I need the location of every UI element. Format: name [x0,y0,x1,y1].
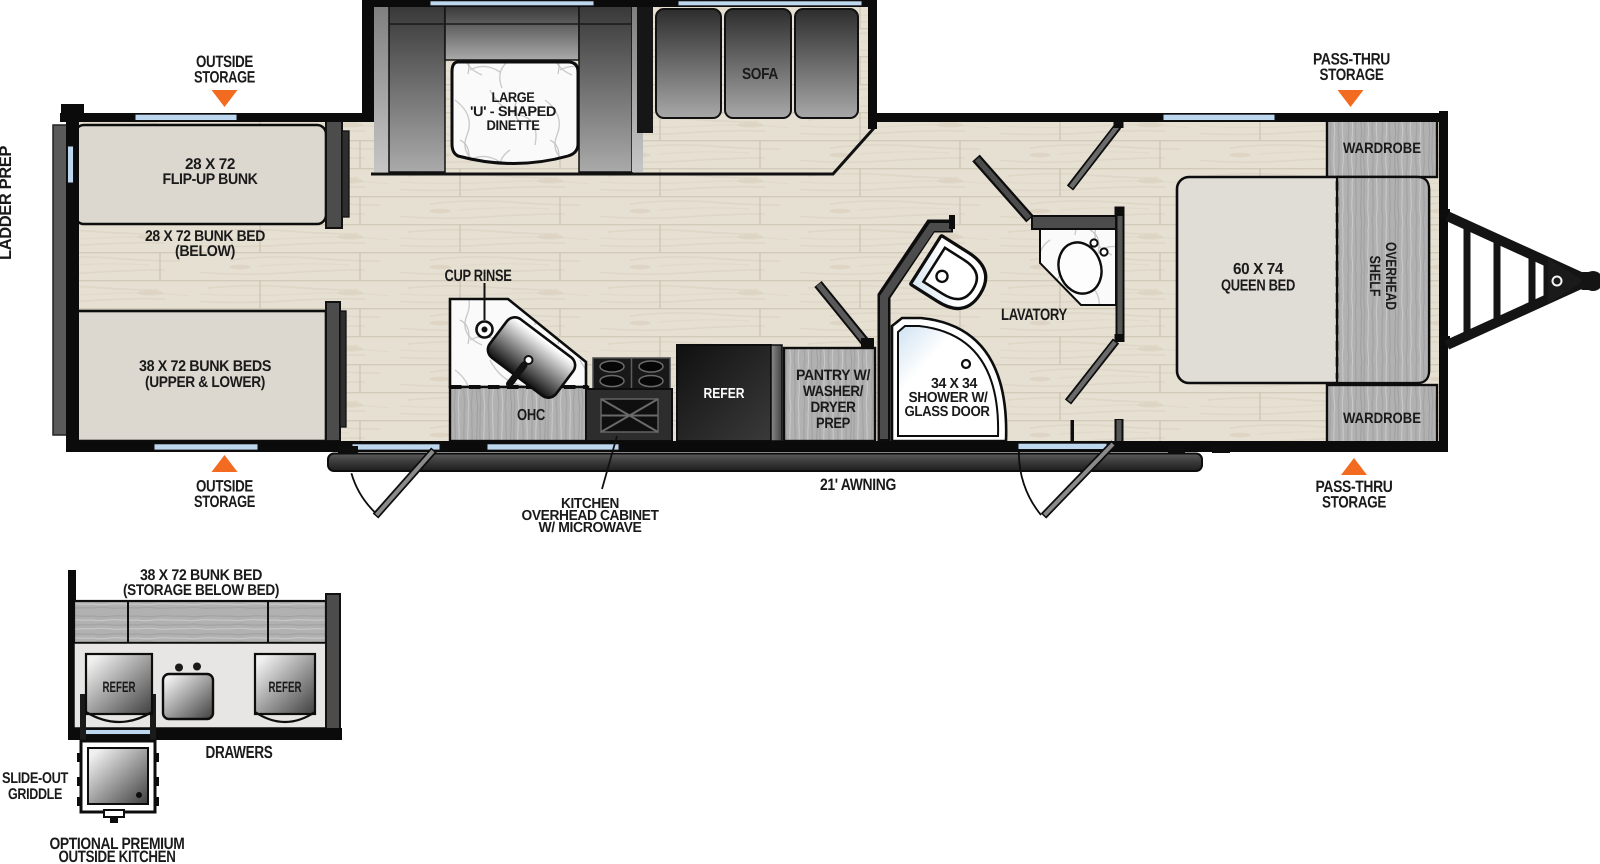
svg-text:LAVATORY: LAVATORY [1001,306,1067,324]
svg-text:60 X 74: 60 X 74 [1233,261,1283,278]
svg-text:FLIP-UP BUNK: FLIP-UP BUNK [163,171,259,188]
svg-text:STORAGE: STORAGE [1322,494,1386,512]
svg-text:STORAGE: STORAGE [1320,66,1384,84]
svg-text:DRAWERS: DRAWERS [206,742,273,762]
svg-text:GRIDDLE: GRIDDLE [8,786,62,803]
svg-text:OVERHEAD: OVERHEAD [1382,242,1399,310]
svg-text:SHELF: SHELF [1366,256,1383,297]
svg-text:WARDROBE: WARDROBE [1343,410,1421,427]
svg-text:OUTSIDE KITCHEN: OUTSIDE KITCHEN [59,848,176,864]
svg-text:PANTRY W/: PANTRY W/ [796,367,871,384]
svg-text:(BELOW): (BELOW) [175,243,235,260]
svg-text:LADDER PREP: LADDER PREP [0,146,15,260]
svg-text:21' AWNING: 21' AWNING [820,476,896,494]
svg-text:QUEEN BED: QUEEN BED [1221,278,1295,295]
svg-text:PREP: PREP [816,415,850,432]
svg-text:REFER: REFER [103,679,136,696]
svg-text:(STORAGE BELOW BED): (STORAGE BELOW BED) [123,582,279,599]
svg-text:DRYER: DRYER [811,399,857,416]
svg-text:CUP RINSE: CUP RINSE [445,267,512,285]
svg-text:REFER: REFER [704,386,745,402]
svg-text:REFER: REFER [269,679,302,696]
svg-text:STORAGE: STORAGE [194,69,255,87]
svg-text:WARDROBE: WARDROBE [1343,140,1421,157]
svg-text:SOFA: SOFA [742,66,779,83]
svg-text:SLIDE-OUT: SLIDE-OUT [2,770,69,787]
svg-text:38 X 72 BUNK BEDS: 38 X 72 BUNK BEDS [139,358,271,375]
svg-text:W/ MICROWAVE: W/ MICROWAVE [539,520,643,536]
svg-text:(UPPER & LOWER): (UPPER & LOWER) [145,374,265,391]
svg-text:DINETTE: DINETTE [487,117,540,133]
svg-text:GLASS DOOR: GLASS DOOR [905,404,991,420]
svg-text:STORAGE: STORAGE [194,493,255,511]
svg-text:OHC: OHC [517,407,546,424]
svg-text:WASHER/: WASHER/ [803,383,864,400]
